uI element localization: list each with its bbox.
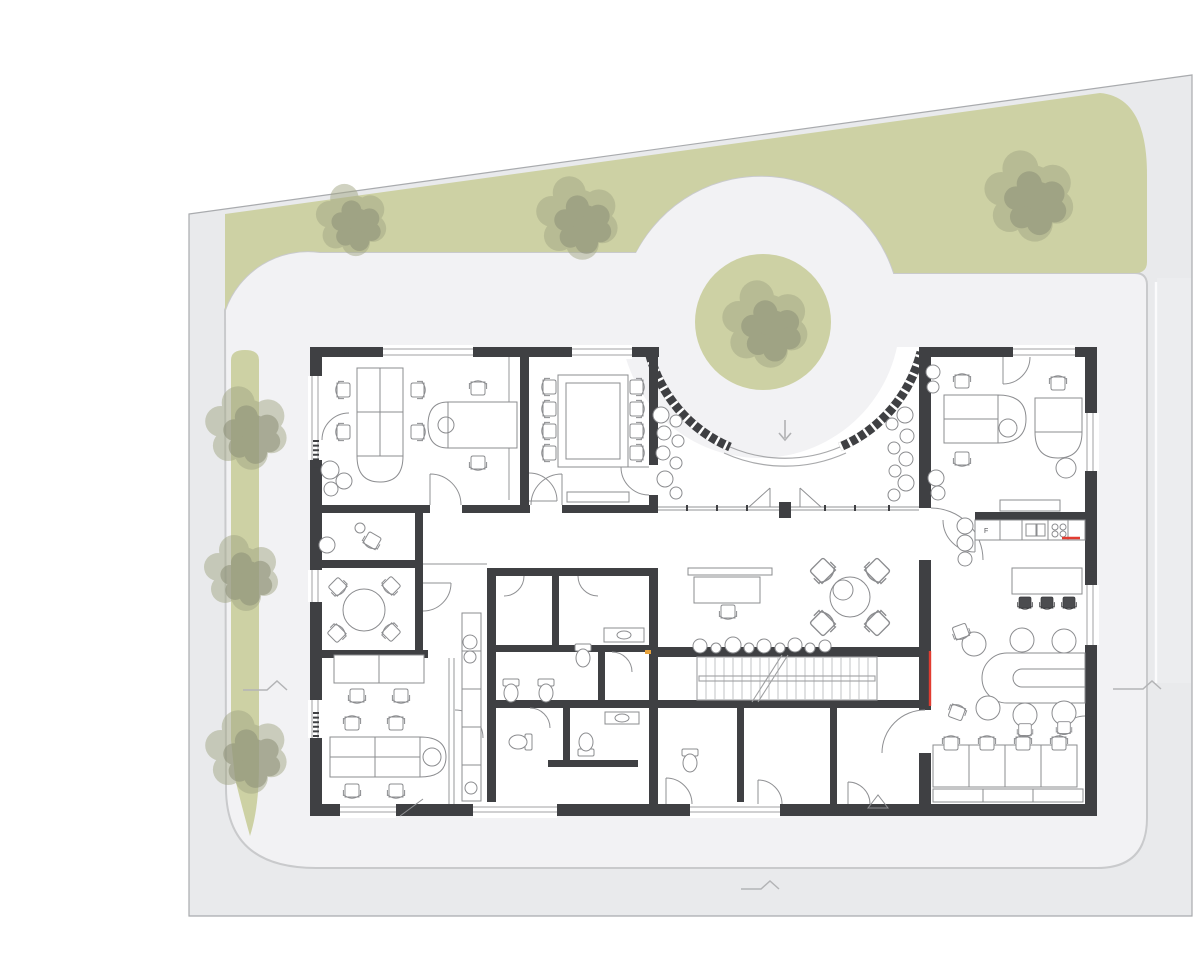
chair bbox=[387, 784, 404, 798]
chair bbox=[953, 452, 970, 466]
plant bbox=[355, 523, 365, 533]
window bbox=[308, 570, 324, 602]
plant bbox=[931, 486, 945, 500]
chair bbox=[343, 784, 360, 798]
chair bbox=[343, 716, 360, 730]
round-table bbox=[343, 589, 385, 631]
chair bbox=[719, 605, 736, 619]
chair bbox=[1017, 724, 1032, 737]
chair bbox=[336, 381, 350, 398]
chair bbox=[630, 444, 644, 461]
window bbox=[1013, 345, 1075, 359]
orange-accent bbox=[645, 650, 651, 654]
plant bbox=[957, 518, 973, 534]
storage-cabinets bbox=[462, 613, 481, 801]
chair bbox=[542, 378, 556, 395]
chair bbox=[542, 422, 556, 439]
kitchen-island bbox=[1012, 568, 1082, 594]
fridge-label: F bbox=[984, 528, 988, 535]
plant bbox=[319, 537, 335, 553]
pouf bbox=[976, 696, 1000, 720]
plant bbox=[465, 782, 477, 794]
chair bbox=[942, 736, 959, 750]
chair bbox=[630, 422, 644, 439]
window bbox=[1083, 413, 1099, 471]
sideboard bbox=[567, 492, 629, 502]
plant bbox=[463, 635, 477, 649]
chair bbox=[336, 423, 350, 440]
window bbox=[1083, 585, 1099, 645]
chair bbox=[978, 736, 995, 750]
conference-table bbox=[558, 375, 628, 467]
plant bbox=[928, 470, 944, 486]
window bbox=[340, 802, 396, 818]
chair bbox=[1014, 736, 1031, 750]
chair bbox=[387, 716, 404, 730]
plant bbox=[926, 365, 940, 379]
chair bbox=[469, 381, 486, 395]
toilet bbox=[575, 644, 591, 667]
toilet bbox=[682, 749, 698, 772]
stool bbox=[1062, 597, 1077, 609]
window bbox=[383, 345, 473, 359]
chair bbox=[1050, 736, 1067, 750]
pouf bbox=[1010, 628, 1034, 652]
window bbox=[473, 802, 557, 818]
plant bbox=[321, 461, 339, 479]
stool bbox=[1040, 597, 1055, 609]
entrance-door-post bbox=[779, 502, 791, 518]
chair bbox=[469, 456, 486, 470]
sink-counter bbox=[604, 628, 644, 642]
floor-plan-drawing: Architectural ground-floor site plan: of… bbox=[0, 0, 1200, 965]
staircase bbox=[697, 655, 877, 702]
window bbox=[308, 376, 324, 460]
floor-plan-canvas: Architectural ground-floor site plan: of… bbox=[0, 0, 1200, 965]
window bbox=[572, 345, 632, 359]
toilet bbox=[503, 679, 519, 702]
chair bbox=[542, 400, 556, 417]
chair bbox=[348, 689, 365, 703]
plant bbox=[927, 381, 939, 393]
toilet bbox=[509, 734, 532, 750]
toilet bbox=[578, 733, 594, 756]
reception-counter bbox=[688, 568, 772, 575]
window bbox=[690, 802, 780, 818]
stool bbox=[1018, 597, 1033, 609]
sideboard bbox=[1000, 500, 1060, 511]
chair bbox=[411, 423, 425, 440]
pouf bbox=[1052, 629, 1076, 653]
chair bbox=[630, 378, 644, 395]
chair bbox=[953, 374, 970, 388]
plant bbox=[957, 535, 973, 551]
plant bbox=[336, 473, 352, 489]
plant bbox=[464, 651, 476, 663]
plant bbox=[958, 552, 972, 566]
chair bbox=[392, 689, 409, 703]
chair bbox=[1056, 722, 1071, 735]
site-margin-strip bbox=[1157, 278, 1191, 683]
plant bbox=[324, 482, 338, 496]
bench-counter bbox=[933, 789, 1083, 802]
toilet bbox=[538, 679, 554, 702]
chair bbox=[411, 381, 425, 398]
chair bbox=[1049, 376, 1066, 390]
chair bbox=[630, 400, 644, 417]
chair bbox=[542, 444, 556, 461]
plant bbox=[1056, 458, 1076, 478]
